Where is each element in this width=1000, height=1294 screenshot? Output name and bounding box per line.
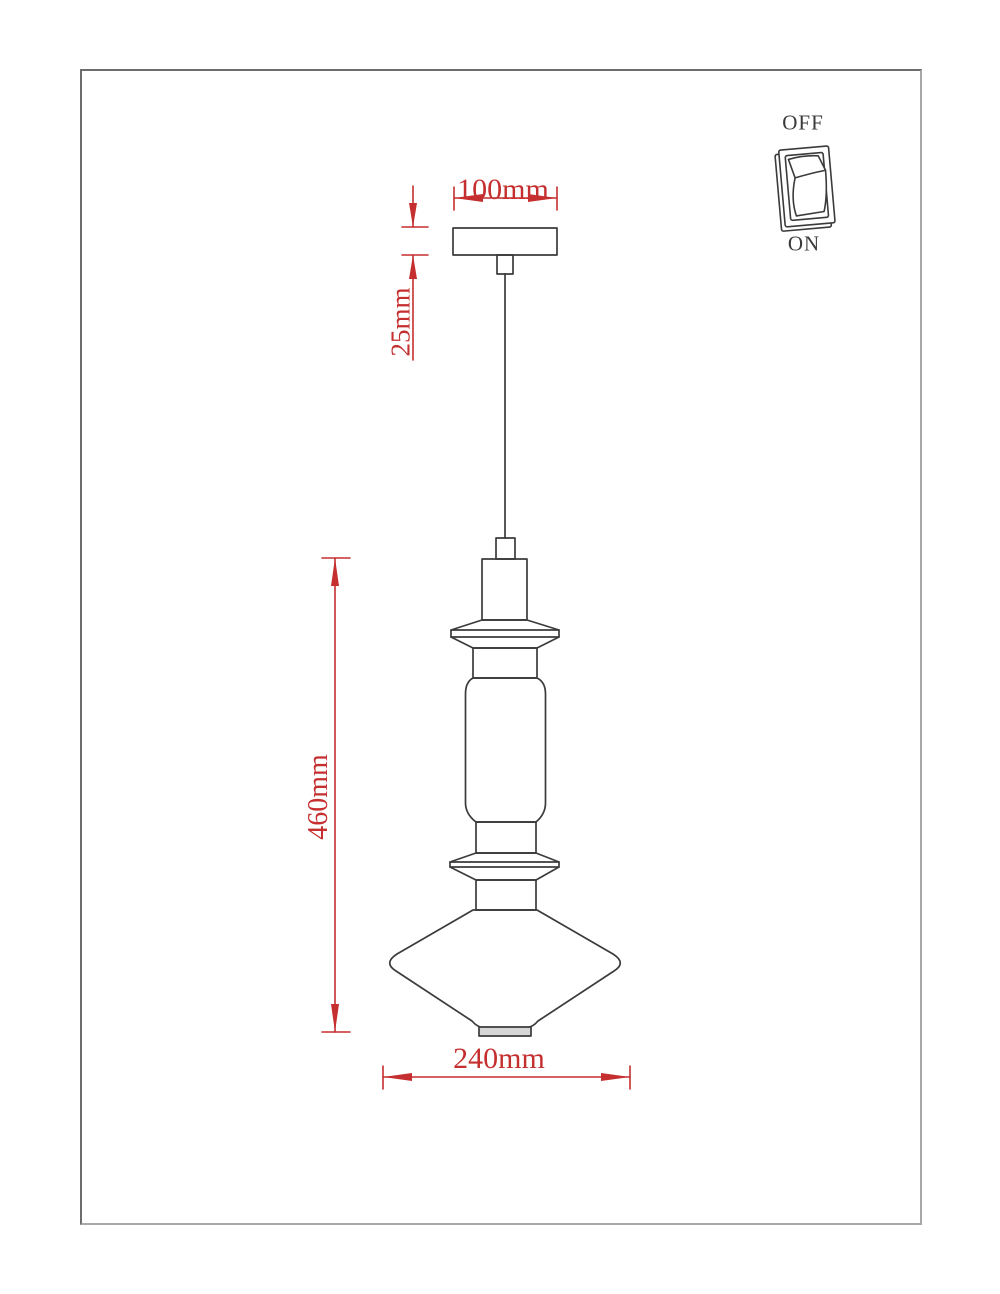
upper-neck <box>473 648 537 678</box>
dim-label-canopy-width: 100mm <box>457 175 549 205</box>
switch-off-label: OFF <box>782 113 824 134</box>
drawing-page: 100mm 25mm 460mm 240mm OFF ON <box>0 0 1000 1294</box>
shade-collar <box>476 880 536 910</box>
dim-label-canopy-drop: 25mm <box>388 287 415 356</box>
lower-saucer-disc <box>450 853 559 880</box>
switch-on-label: ON <box>788 234 820 255</box>
lamp-socket <box>482 559 527 620</box>
lamp-shade <box>390 910 621 1036</box>
glass-body <box>466 678 546 822</box>
lower-neck <box>476 822 536 853</box>
ceiling-canopy <box>453 228 557 274</box>
rocker-switch-icon <box>775 146 836 231</box>
dim-label-shade-diameter: 240mm <box>453 1044 545 1074</box>
dim-label-fixture-height: 460mm <box>305 754 333 840</box>
suspension-cord <box>496 274 515 559</box>
upper-saucer-disc <box>451 620 559 648</box>
